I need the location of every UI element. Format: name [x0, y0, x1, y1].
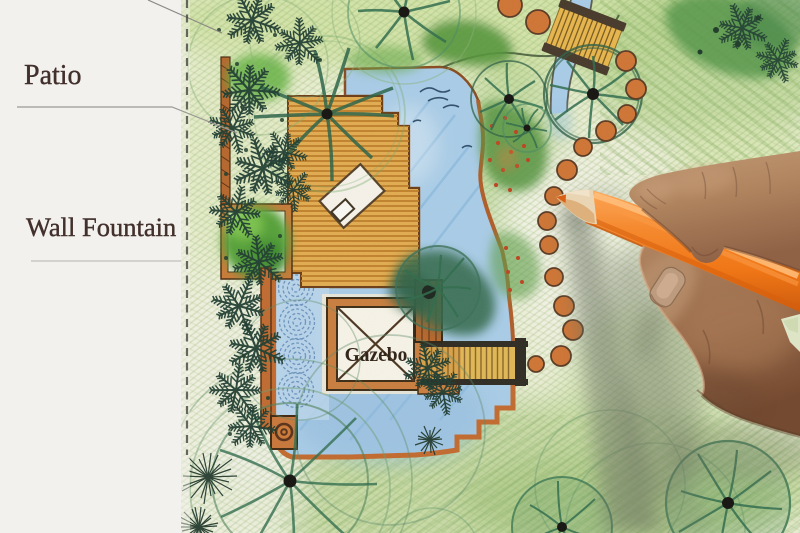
svg-text:Patio: Patio — [24, 60, 82, 91]
svg-text:Wall Fountain: Wall Fountain — [26, 212, 176, 242]
